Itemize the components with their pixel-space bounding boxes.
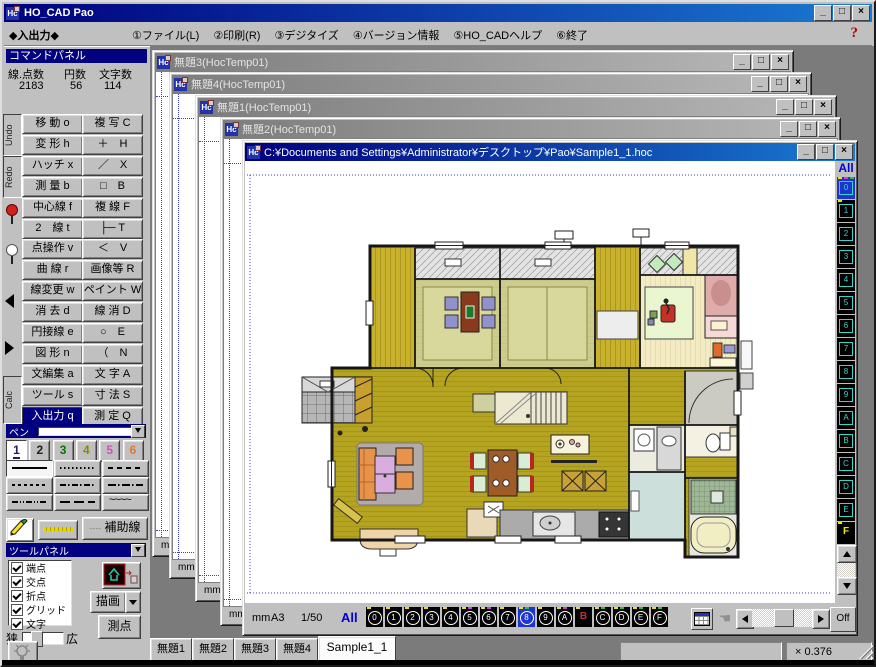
snap-item-label: グリッド	[26, 606, 66, 617]
minimize-button[interactable]: _	[733, 54, 751, 70]
aux-line-label: 補助線	[105, 520, 141, 534]
app-window: Hc HO_CAD Pao _□× ◆入出力◆ ①ファイル(L)②印刷(R)③デ…	[0, 0, 876, 667]
pen-button-1[interactable]: 1	[6, 440, 27, 462]
layer-button-right-8[interactable]: 8	[837, 361, 855, 383]
command-button-ペイント-W[interactable]: ペイント W	[82, 281, 143, 301]
hand-icon: ☚	[719, 610, 732, 626]
command-button-文編集-a[interactable]: 文編集 a	[22, 365, 83, 385]
tool-panel-collapse-icon[interactable]	[131, 544, 145, 557]
line-style-long-dash[interactable]	[54, 494, 101, 511]
pen-panel-collapse-icon[interactable]	[131, 425, 145, 438]
layer-all-button-right[interactable]: All	[837, 161, 855, 176]
page-boundary-vline	[204, 117, 205, 582]
snap-item-label: 交点	[26, 578, 46, 589]
window-controls: _□×	[813, 5, 870, 21]
document-window-active[interactable]: Hc C:¥Documents and Settings¥Administrat…	[242, 140, 858, 636]
command-button-変-形-h[interactable]: 変 形 h	[22, 135, 83, 155]
command-button-grid: 移 動 o複 写 C変 形 h＋ Hハッチ x／ X測 量 b□ B中心線 f複…	[2, 46, 150, 426]
paper-size-label: A3	[271, 612, 284, 624]
layer-button-right-0[interactable]: 0	[837, 177, 855, 199]
snap-checkbox-list: 端点交点折点グリッド文字	[8, 560, 72, 626]
aux-line-button[interactable]: ---- 補助線	[82, 517, 148, 540]
document-icon: Hc	[200, 101, 213, 114]
pan-hand-button[interactable]: ☚	[715, 608, 735, 628]
document-title-bar[interactable]: Hc無題4(HocTemp01)_□×	[172, 75, 809, 93]
document-icon: Hc	[225, 123, 238, 136]
layer-button-bottom-D[interactable]: D	[613, 607, 630, 627]
tool-panel-header: ツールパネル	[6, 543, 146, 557]
pen-panel-header: ペン	[6, 424, 146, 438]
command-button-画像等-R[interactable]: 画像等 R	[82, 260, 143, 280]
command-button-文-字-A[interactable]: 文 字 A	[82, 365, 143, 385]
scale-label: 1/50	[301, 612, 322, 624]
tab-Sample1_1[interactable]: Sample1_1	[318, 636, 396, 660]
layer-button-bottom-2[interactable]: 2	[404, 607, 421, 627]
command-button-2-線-t[interactable]: 2 線 t	[22, 219, 83, 239]
layer-button-right-3[interactable]: 3	[837, 246, 855, 268]
layer-button-right-7[interactable]: 7	[837, 338, 855, 360]
layer-button-bottom-9[interactable]: 9	[537, 607, 554, 627]
minimize-button[interactable]: _	[751, 76, 769, 92]
pen-button-3[interactable]: 3	[53, 440, 74, 462]
window-bottom-edge	[2, 660, 874, 665]
wide-label: 広	[66, 630, 78, 647]
snap-item-label: 折点	[26, 592, 46, 603]
checkbox-checked-icon[interactable]	[11, 604, 23, 616]
line-style-wave[interactable]: ~~~~	[102, 494, 149, 511]
layer-buttons-bottom: 0123456789ABCDEF	[366, 607, 670, 627]
command-button-線-消-D[interactable]: 線 消 D	[82, 302, 143, 322]
close-button[interactable]: ×	[789, 76, 807, 92]
checkbox-checked-icon[interactable]	[11, 590, 23, 602]
layer-button-right-4[interactable]: 4	[837, 269, 855, 291]
mdi-area: Hc無題3(HocTemp01)_□×mmHc無題4(HocTemp01)_□×…	[150, 46, 874, 660]
tab-無題3[interactable]: 無題3	[234, 638, 276, 660]
window-controls: _□×	[750, 76, 807, 92]
pen-button-6[interactable]: 6	[123, 440, 144, 462]
tab-無題1[interactable]: 無題1	[150, 638, 192, 660]
window-controls: _□×	[775, 99, 832, 115]
page-boundary-vline	[161, 72, 162, 537]
document-title: 無題4(HocTemp01)	[191, 76, 285, 92]
layer-button-right-5[interactable]: 5	[837, 292, 855, 314]
menu-item-5[interactable]: ⑥終了	[556, 27, 588, 43]
menu-item-3[interactable]: ④バージョン情報	[353, 27, 440, 43]
line-style-buttons: ~~~~	[2, 460, 150, 514]
layer-bar-right: All 0123456789ABCDEF	[837, 161, 855, 603]
pencil-button[interactable]	[6, 518, 34, 542]
layer-off-button[interactable]: Off	[830, 607, 856, 632]
document-title: C:¥Documents and Settings¥Administrator¥…	[264, 144, 652, 160]
pen-button-2[interactable]: 2	[29, 440, 50, 462]
menu-items: ①ファイル(L)②印刷(R)③デジタイズ④バージョン情報⑤HO_CADヘルプ⑥終…	[132, 27, 602, 43]
command-button-点操作-v[interactable]: 点操作 v	[22, 239, 83, 259]
close-button[interactable]: ×	[818, 121, 836, 137]
home-view-icon	[103, 563, 138, 586]
document-icon: Hc	[157, 56, 170, 69]
maximize-button[interactable]: □	[795, 99, 813, 115]
menu-bar: ◆入出力◆ ①ファイル(L)②印刷(R)③デジタイズ④バージョン情報⑤HO_CA…	[4, 23, 872, 46]
layer-button-right-6[interactable]: 6	[837, 315, 855, 337]
command-button-（-N[interactable]: （ N	[82, 344, 143, 364]
minimize-button[interactable]: _	[776, 99, 794, 115]
command-panel: コマンドパネル 線.点数 円数 文字数 2183 56 114 Undo Red…	[2, 46, 150, 665]
command-button-├─-T[interactable]: ├─ T	[82, 219, 143, 239]
snap-item-label: 端点	[26, 564, 46, 575]
command-button-移-動-o[interactable]: 移 動 o	[22, 114, 83, 134]
line-style-dash-fine[interactable]	[6, 477, 53, 494]
layer-button-bottom-6[interactable]: 6	[480, 607, 497, 627]
title-bar: Hc HO_CAD Pao _□×	[4, 4, 872, 22]
zoom-readout: × 0.376	[795, 646, 832, 658]
layer-button-right-1[interactable]: 1	[837, 200, 855, 222]
aux-dash-icon: ----	[89, 523, 101, 533]
doc-close-button[interactable]: ×	[835, 144, 853, 160]
v-scrollbar-track[interactable]	[837, 563, 855, 577]
document-icon: Hc	[174, 78, 187, 91]
pen-panel-title: ペン	[9, 428, 29, 439]
close-button[interactable]: ×	[771, 54, 789, 70]
layer-table-button[interactable]	[691, 608, 713, 630]
command-button-複-写-C[interactable]: 複 写 C	[82, 114, 143, 134]
document-title: 無題3(HocTemp01)	[174, 54, 268, 70]
unit-label: mm	[204, 585, 221, 596]
document-icon: Hc	[247, 146, 260, 159]
window-controls: _□×	[732, 54, 789, 70]
page-boundary-vline	[178, 94, 179, 559]
v-scroll-up-icon[interactable]	[837, 545, 857, 563]
document-title-bar[interactable]: Hc無題2(HocTemp01)_□×	[223, 120, 838, 138]
document-title: 無題1(HocTemp01)	[217, 99, 311, 115]
tab-無題4[interactable]: 無題4	[276, 638, 318, 660]
layer-button-right-C[interactable]: C	[837, 453, 855, 475]
layer-button-bottom-E[interactable]: E	[632, 607, 649, 627]
line-style-dash-dot-b[interactable]	[102, 477, 149, 494]
layer-buttons-right: 0123456789ABCDEF	[837, 177, 855, 544]
close-button[interactable]: ×	[852, 5, 870, 21]
home-view-button[interactable]	[102, 562, 141, 589]
layer-button-bottom-0[interactable]: 0	[366, 607, 383, 627]
snap-item-3[interactable]: グリッド	[11, 604, 69, 618]
command-button-測-量-b[interactable]: 測 量 b	[22, 177, 83, 197]
doc-maximize-button[interactable]: □	[816, 144, 834, 160]
unit-label: mm	[178, 562, 195, 573]
v-scroll-down-icon[interactable]	[837, 577, 857, 595]
layer-button-bottom-4[interactable]: 4	[442, 607, 459, 627]
command-button-円接線-e[interactable]: 円接線 e	[22, 323, 83, 343]
command-button-消-去-d[interactable]: 消 去 d	[22, 302, 83, 322]
maximize-button[interactable]: □	[752, 54, 770, 70]
pen-button-5[interactable]: 5	[99, 440, 120, 462]
drawing-canvas[interactable]	[245, 161, 835, 603]
layer-button-bottom-B[interactable]: B	[575, 607, 592, 627]
snap-item-label: 文字	[26, 620, 46, 631]
checkbox-checked-icon[interactable]	[11, 618, 23, 630]
maximize-button[interactable]: □	[833, 5, 851, 21]
command-button-曲-線-r[interactable]: 曲 線 r	[22, 260, 83, 280]
layer-button-bottom-5[interactable]: 5	[461, 607, 478, 627]
snap-item-0[interactable]: 端点	[11, 562, 69, 576]
menu-item-0[interactable]: ①ファイル(L)	[132, 27, 199, 43]
layer-button-bottom-3[interactable]: 3	[423, 607, 440, 627]
command-button-寸-法-S[interactable]: 寸 法 S	[82, 386, 143, 406]
pencil-icon	[7, 519, 31, 539]
menu-item-2[interactable]: ③デジタイズ	[274, 27, 338, 43]
mode-label: ◆入出力◆	[9, 27, 59, 43]
maximize-button[interactable]: □	[770, 76, 788, 92]
layer-button-right-9[interactable]: 9	[837, 384, 855, 406]
pen-button-4[interactable]: 4	[76, 440, 97, 462]
pen-buttons: 123456	[2, 440, 150, 462]
h-scroll-right-icon[interactable]	[812, 609, 830, 629]
layer-button-bottom-F[interactable]: F	[651, 607, 668, 627]
command-button-複-線-F[interactable]: 複 線 F	[82, 198, 143, 218]
layer-button-right-B[interactable]: B	[837, 430, 855, 452]
minimize-button[interactable]: _	[780, 121, 798, 137]
line-style-dotted[interactable]	[54, 460, 101, 477]
line-style-dashed[interactable]	[102, 460, 149, 477]
layer-button-right-E[interactable]: E	[837, 499, 855, 521]
doc-minimize-button[interactable]: _	[797, 144, 815, 160]
menu-item-4[interactable]: ⑤HO_CADヘルプ	[453, 27, 542, 43]
layer-button-right-A[interactable]: A	[837, 407, 855, 429]
command-button-図-形-n[interactable]: 図 形 n	[22, 344, 83, 364]
layer-button-bottom-7[interactable]: 7	[499, 607, 516, 627]
tab-無題2[interactable]: 無題2	[192, 638, 234, 660]
checkbox-checked-icon[interactable]	[11, 562, 23, 574]
help-icon[interactable]: ?	[851, 25, 859, 42]
h-scrollbar-track[interactable]	[752, 609, 812, 627]
status-message-panel	[620, 642, 782, 660]
command-button-＜-V[interactable]: ＜ V	[82, 239, 143, 259]
snap-item-1[interactable]: 交点	[11, 576, 69, 590]
app-title: HO_CAD Pao	[24, 7, 94, 19]
layer-button-bottom-A[interactable]: A	[556, 607, 573, 627]
pen-width-slider[interactable]	[38, 427, 132, 436]
app-icon: Hc	[6, 7, 19, 20]
measure-point-button[interactable]: 測点	[98, 615, 141, 639]
menu-item-1[interactable]: ②印刷(R)	[213, 27, 260, 43]
unit-label: mm	[252, 612, 270, 624]
page-boundary-vline	[229, 139, 230, 606]
draw-dropdown: 描画	[90, 591, 139, 611]
h-scrollbar-thumb[interactable]	[774, 609, 794, 627]
tool-panel-title: ツールパネル	[9, 547, 69, 558]
window-controls: _□×	[779, 121, 836, 137]
command-button-＋-H[interactable]: ＋ H	[82, 135, 143, 155]
command-button-ツール-s[interactable]: ツール s	[22, 386, 83, 406]
table-icon	[694, 612, 710, 626]
layer-button-bottom-C[interactable]: C	[594, 607, 611, 627]
yellow-aux-pen-button[interactable]	[38, 520, 78, 540]
line-style-dash-dot[interactable]	[54, 477, 101, 494]
command-button-○-E[interactable]: ○ E	[82, 323, 143, 343]
line-style-dash-dot-dot[interactable]	[6, 494, 53, 511]
command-button-□-B[interactable]: □ B	[82, 177, 143, 197]
layer-button-bottom-1[interactable]: 1	[385, 607, 402, 627]
resize-grip[interactable]	[859, 645, 873, 659]
close-button[interactable]: ×	[814, 99, 832, 115]
document-title-bar[interactable]: Hc C:¥Documents and Settings¥Administrat…	[245, 143, 855, 161]
layer-all-button-bottom[interactable]: All	[341, 610, 358, 625]
command-button-線変更-w[interactable]: 線変更 w	[22, 281, 83, 301]
document-title-bar[interactable]: Hc無題1(HocTemp01)_□×	[198, 98, 834, 116]
draw-button[interactable]: 描画	[90, 591, 126, 613]
snap-item-2[interactable]: 折点	[11, 590, 69, 604]
draw-dropdown-arrow-icon[interactable]	[125, 591, 141, 613]
minimize-button[interactable]: _	[814, 5, 832, 21]
maximize-button[interactable]: □	[799, 121, 817, 137]
layer-button-right-D[interactable]: D	[837, 476, 855, 498]
document-title-bar[interactable]: Hc無題3(HocTemp01)_□×	[155, 53, 791, 71]
document-title: 無題2(HocTemp01)	[242, 121, 336, 137]
command-button-／-X[interactable]: ／ X	[82, 156, 143, 176]
layer-button-right-2[interactable]: 2	[837, 223, 855, 245]
layer-button-right-F[interactable]: F	[837, 522, 855, 544]
document-bottom-bar: mm A3 1/50 All 0123456789ABCDEF ☚	[245, 603, 855, 633]
checkbox-checked-icon[interactable]	[11, 576, 23, 588]
floor-plan-drawing	[245, 161, 833, 601]
yellow-dotted-line	[43, 527, 73, 531]
command-button-中心線-f[interactable]: 中心線 f	[22, 198, 83, 218]
command-button-ハッチ-x[interactable]: ハッチ x	[22, 156, 83, 176]
layer-button-bottom-8[interactable]: 8	[518, 607, 535, 627]
snap-item-4[interactable]: 文字	[11, 618, 69, 632]
line-style-solid[interactable]	[6, 460, 53, 477]
